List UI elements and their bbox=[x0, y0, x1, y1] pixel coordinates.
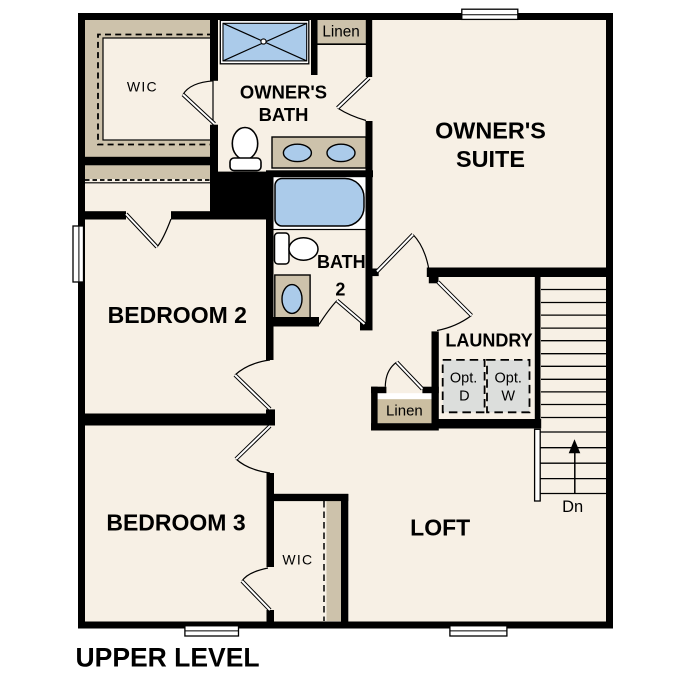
svg-text:SUITE: SUITE bbox=[456, 146, 525, 172]
svg-text:BATH: BATH bbox=[259, 104, 309, 125]
svg-text:OWNER'S: OWNER'S bbox=[435, 117, 546, 143]
svg-text:Linen: Linen bbox=[322, 24, 359, 41]
svg-text:Opt.: Opt. bbox=[494, 371, 521, 387]
svg-text:Opt.: Opt. bbox=[450, 371, 477, 387]
svg-text:BATH: BATH bbox=[317, 252, 366, 272]
svg-text:WIC: WIC bbox=[282, 552, 313, 568]
svg-text:WIC: WIC bbox=[127, 79, 158, 95]
svg-text:LOFT: LOFT bbox=[410, 515, 470, 541]
svg-text:LAUNDRY: LAUNDRY bbox=[445, 331, 532, 351]
svg-text:2: 2 bbox=[335, 280, 345, 300]
svg-text:Dn: Dn bbox=[562, 498, 583, 516]
svg-text:UPPER LEVEL: UPPER LEVEL bbox=[76, 642, 260, 672]
svg-text:W: W bbox=[501, 389, 515, 405]
svg-text:D: D bbox=[459, 389, 469, 405]
svg-text:BEDROOM 2: BEDROOM 2 bbox=[108, 302, 247, 328]
svg-text:BEDROOM 3: BEDROOM 3 bbox=[106, 510, 245, 536]
svg-text:Linen: Linen bbox=[386, 402, 423, 419]
svg-text:OWNER'S: OWNER'S bbox=[240, 82, 327, 103]
